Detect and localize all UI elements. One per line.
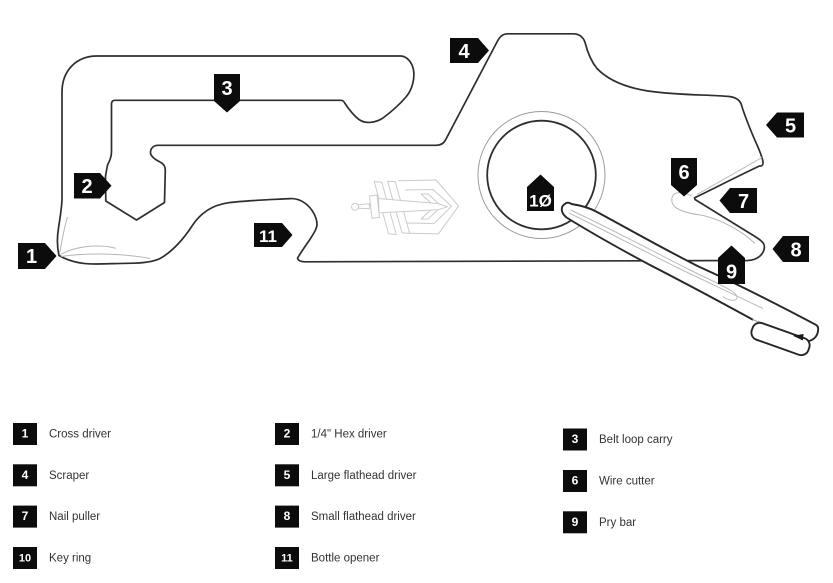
svg-text:Key ring: Key ring [49,553,91,565]
svg-text:4: 4 [22,468,29,482]
svg-text:1: 1 [26,246,37,268]
svg-text:1Ø: 1Ø [529,192,552,211]
svg-text:Bottle opener: Bottle opener [311,553,380,565]
svg-text:11: 11 [281,553,293,565]
svg-text:5: 5 [284,468,291,482]
svg-text:4: 4 [458,41,470,63]
svg-text:6: 6 [678,162,689,184]
svg-text:9: 9 [572,515,579,529]
svg-text:7: 7 [738,191,749,213]
svg-text:6: 6 [572,474,579,488]
svg-text:Small flathead driver: Small flathead driver [311,511,416,523]
svg-text:3: 3 [572,432,579,446]
svg-text:Scraper: Scraper [49,470,89,482]
svg-text:8: 8 [790,240,801,262]
svg-text:1: 1 [22,427,29,441]
svg-text:2: 2 [284,427,291,441]
svg-text:2: 2 [81,176,92,198]
svg-text:3: 3 [221,78,232,100]
svg-text:7: 7 [22,509,29,523]
svg-text:Cross driver: Cross driver [49,429,111,441]
svg-text:5: 5 [785,116,796,138]
svg-text:Large flathead driver: Large flathead driver [311,470,417,482]
svg-text:Belt loop carry: Belt loop carry [599,434,673,446]
svg-text:Nail puller: Nail puller [49,511,100,523]
svg-text:11: 11 [259,227,277,246]
svg-text:1/4" Hex driver: 1/4" Hex driver [311,429,387,441]
svg-text:8: 8 [284,509,291,523]
svg-text:Pry bar: Pry bar [599,517,636,529]
svg-text:9: 9 [726,262,737,284]
svg-text:Wire cutter: Wire cutter [599,476,655,488]
svg-text:10: 10 [19,553,31,565]
